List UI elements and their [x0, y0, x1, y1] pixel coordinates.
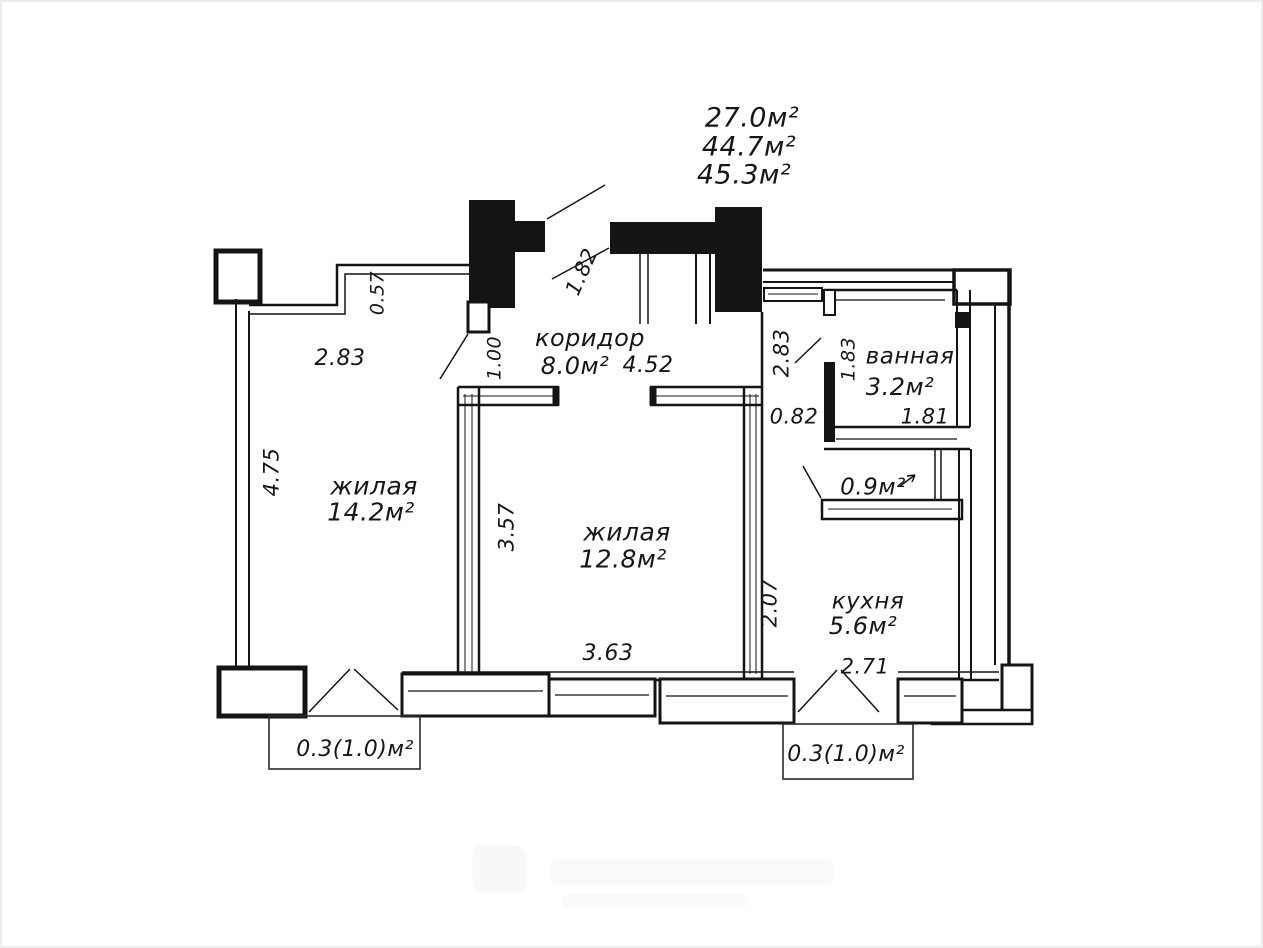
watermark-text-line1 — [550, 859, 834, 885]
balcony-left-area: 0.3(1.0)м² — [296, 739, 414, 761]
living1-area: 14.2м² — [327, 500, 415, 525]
kitchen-label: кухня — [832, 591, 905, 614]
dim-3-63: 3.63 — [583, 643, 634, 665]
kitchen-area: 5.6м² — [829, 614, 897, 638]
watermark-text-line2 — [562, 895, 748, 907]
shaft-left — [469, 200, 545, 308]
living1-door-swing — [440, 334, 468, 379]
dim-1-83: 1.83 — [840, 337, 859, 381]
corridor-area: 8.0м² — [541, 354, 609, 378]
floorplan-drawing — [2, 2, 1263, 948]
storage-door-swing — [803, 466, 821, 498]
window-living2 — [660, 679, 794, 723]
bathroom-door-swing — [795, 338, 821, 363]
storage-area: 0.9м² — [840, 477, 906, 500]
dim-2-71: 2.71 — [841, 657, 890, 678]
dim-2-07: 2.07 — [760, 579, 781, 628]
window-living1 — [402, 674, 549, 716]
total-area-line1: 27.0м² — [705, 105, 799, 132]
living1-label: жилая — [330, 474, 418, 499]
corridor-label: коридор — [535, 326, 645, 350]
entrance-door-line1 — [547, 185, 605, 219]
shaft-blocks — [469, 200, 762, 312]
floorplan-page: 27.0м² 44.7м² 45.3м² коридор 8.0м² 4.52 … — [0, 0, 1263, 948]
door-pier-box — [468, 302, 489, 332]
watermark-logo — [472, 845, 526, 893]
dim-3-57: 3.57 — [497, 503, 518, 552]
total-area-line3: 45.3м² — [697, 162, 791, 189]
balcony-right-area: 0.3(1.0)м² — [787, 744, 905, 766]
living2-label: жилая — [583, 520, 671, 545]
window-kitchen — [898, 679, 962, 723]
dim-1-00: 1.00 — [486, 336, 505, 380]
bathroom-area: 3.2м² — [866, 375, 934, 399]
dim-1-81: 1.81 — [901, 407, 950, 428]
dim-2-83-right: 2.83 — [772, 329, 793, 378]
dim-2-83-left: 2.83 — [315, 348, 366, 370]
shaft-right — [610, 207, 762, 312]
bathroom-label: ванная — [866, 346, 955, 369]
dim-4-75: 4.75 — [262, 448, 283, 497]
corner-block-top-left — [216, 251, 260, 302]
dim-0-57: 0.57 — [369, 271, 388, 315]
dim-4-52: 4.52 — [623, 355, 674, 377]
living2-area: 12.8м² — [579, 547, 667, 572]
pier-bottom-left — [219, 668, 305, 716]
total-area-line2: 44.7м² — [702, 134, 796, 161]
window-living1b — [549, 679, 655, 716]
dim-0-82: 0.82 — [770, 407, 819, 428]
